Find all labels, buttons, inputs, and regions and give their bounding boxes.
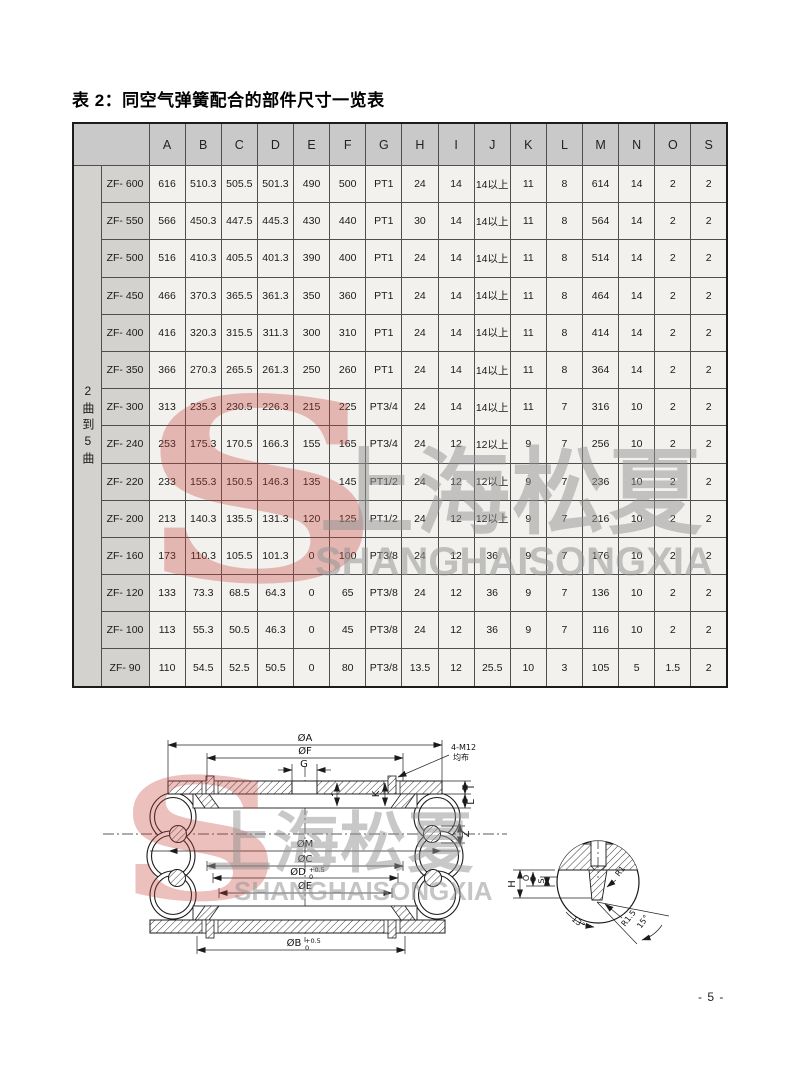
value-cell: 350 [294,277,330,314]
value-cell: 10 [619,389,655,426]
table-row: ZF- 160173110.3105.5101.30100PT3/8241236… [73,537,727,574]
value-cell: 11 [510,166,546,203]
value-cell: 11 [510,240,546,277]
value-cell: 0 [294,612,330,649]
table-row: ZF- 240253175.3170.5166.3155165PT3/42412… [73,426,727,463]
value-cell: 50.5 [221,612,257,649]
model-cell: ZF- 120 [101,575,149,612]
value-cell: 8 [546,314,582,351]
value-cell: 2 [691,389,727,426]
value-cell: 14 [619,166,655,203]
value-cell: 14以上 [474,277,510,314]
value-cell: 447.5 [221,203,257,240]
value-cell: 14 [438,203,474,240]
page-title: 表 2：同空气弹簧配合的部件尺寸一览表 [72,86,385,111]
bolt-note-line1: 4-M12 [451,743,476,752]
value-cell: PT1 [366,240,402,277]
value-cell: 12 [438,500,474,537]
model-cell: ZF- 240 [101,426,149,463]
value-cell: 430 [294,203,330,240]
value-cell: 2 [655,277,691,314]
value-cell: 36 [474,612,510,649]
value-cell: 9 [510,426,546,463]
value-cell: 505.5 [221,166,257,203]
value-cell: 260 [330,351,366,388]
value-cell: 2 [655,203,691,240]
value-cell: 65 [330,575,366,612]
table-row: ZF- 550566450.3447.5445.3430440PT1301414… [73,203,727,240]
value-cell: 12 [438,649,474,687]
value-cell: 133 [149,575,185,612]
value-cell: 14 [619,314,655,351]
value-cell: 155 [294,426,330,463]
tapped-hole [591,838,606,866]
value-cell: 2 [691,649,727,687]
value-cell: 36 [474,537,510,574]
value-cell: 2 [655,537,691,574]
value-cell: 24 [402,575,438,612]
value-cell: 73.3 [185,575,221,612]
value-cell: 516 [149,240,185,277]
value-cell: 366 [149,351,185,388]
value-cell: 500 [330,166,366,203]
value-cell: 2 [691,351,727,388]
air-spring-cross-section-drawing: ØA ØF G 4-M12 均布 J K I L Z ØM [85,728,675,994]
value-cell: 105 [583,649,619,687]
value-cell: 165 [330,426,366,463]
value-cell: 24 [402,612,438,649]
value-cell: 7 [546,500,582,537]
value-cell: 2 [655,314,691,351]
value-cell: 113 [149,612,185,649]
value-cell: 10 [619,500,655,537]
value-cell: 9 [510,537,546,574]
value-cell: 14以上 [474,166,510,203]
dim-label-a: ØA [298,732,313,744]
value-cell: 11 [510,314,546,351]
model-cell: ZF- 300 [101,389,149,426]
value-cell: 225 [330,389,366,426]
value-cell: PT1 [366,166,402,203]
value-cell: 12以上 [474,426,510,463]
value-cell: 2 [655,240,691,277]
value-cell: 2 [655,500,691,537]
value-cell: 14以上 [474,389,510,426]
page-number: - 5 - [698,990,724,1004]
column-header: K [510,123,546,166]
value-cell: 261.3 [257,351,293,388]
value-cell: PT1 [366,277,402,314]
model-cell: ZF- 550 [101,203,149,240]
value-cell: 614 [583,166,619,203]
dim-label-z: Z [461,830,472,837]
value-cell: 7 [546,537,582,574]
value-cell: 3 [546,649,582,687]
value-cell: 2 [691,463,727,500]
value-cell: 146.3 [257,463,293,500]
column-header: I [438,123,474,166]
column-header: N [619,123,655,166]
detail-label-15deg: 15° [635,913,651,930]
dim-b-tol-lower: 0 [305,944,309,952]
column-header: M [583,123,619,166]
value-cell: 14 [619,277,655,314]
value-cell: 24 [402,166,438,203]
value-cell: 405.5 [221,240,257,277]
value-cell: 14 [438,389,474,426]
value-cell: 316 [583,389,619,426]
value-cell: PT3/4 [366,389,402,426]
value-cell: 24 [402,389,438,426]
value-cell: 233 [149,463,185,500]
value-cell: 100 [330,537,366,574]
value-cell: 2 [691,575,727,612]
value-cell: 8 [546,351,582,388]
model-cell: ZF- 350 [101,351,149,388]
table-row: ZF- 10011355.350.546.3045PT3/82412369711… [73,612,727,649]
value-cell: 5 [619,649,655,687]
model-cell: ZF- 400 [101,314,149,351]
value-cell: PT1/2 [366,463,402,500]
top-plate [168,776,442,808]
detail-label-o: O [522,875,531,881]
value-cell: 11 [510,351,546,388]
bellows-left [147,793,196,919]
value-cell: PT1 [366,351,402,388]
value-cell: 116 [583,612,619,649]
value-cell: 52.5 [221,649,257,687]
value-cell: 10 [510,649,546,687]
value-cell: 12以上 [474,463,510,500]
value-cell: 80 [330,649,366,687]
document-page: 表 2：同空气弹簧配合的部件尺寸一览表 ABCDEFGHIJKLMNOS 2曲到… [0,0,800,1085]
value-cell: 14以上 [474,240,510,277]
value-cell: 510.3 [185,166,221,203]
table-row: ZF- 450466370.3365.5361.3350360PT1241414… [73,277,727,314]
column-header: C [221,123,257,166]
value-cell: 8 [546,203,582,240]
value-cell: 155.3 [185,463,221,500]
dim-label-k: K [371,790,382,797]
table-corner [73,123,149,166]
value-cell: 11 [510,389,546,426]
dim-label-m: ØM [297,838,314,850]
value-cell: 131.3 [257,500,293,537]
value-cell: 360 [330,277,366,314]
value-cell: 36 [474,575,510,612]
dim-label-b: ØB [287,937,302,949]
value-cell: 175.3 [185,426,221,463]
dimension-table: ABCDEFGHIJKLMNOS 2曲到5曲ZF- 600616510.3505… [72,122,728,688]
table-body: 2曲到5曲ZF- 600616510.3505.5501.3490500PT12… [73,166,727,687]
air-port [292,781,317,794]
value-cell: 12 [438,537,474,574]
value-cell: 490 [294,166,330,203]
value-cell: 256 [583,426,619,463]
value-cell: 24 [402,277,438,314]
value-cell: PT3/8 [366,612,402,649]
value-cell: 0 [294,537,330,574]
dim-label-d: ØD [290,866,306,878]
value-cell: 365.5 [221,277,257,314]
value-cell: 9 [510,612,546,649]
value-cell: 9 [510,575,546,612]
value-cell: 45 [330,612,366,649]
value-cell: 320.3 [185,314,221,351]
value-cell: 230.5 [221,389,257,426]
value-cell: 2 [655,463,691,500]
value-cell: 12 [438,612,474,649]
value-cell: 14 [438,277,474,314]
value-cell: 101.3 [257,537,293,574]
value-cell: 7 [546,575,582,612]
value-cell: 12 [438,463,474,500]
column-header: S [691,123,727,166]
detail-label-h: H [507,880,518,888]
model-cell: ZF- 100 [101,612,149,649]
value-cell: 13.5 [402,649,438,687]
value-cell: 14 [619,240,655,277]
value-cell: PT1 [366,203,402,240]
value-cell: PT1/2 [366,500,402,537]
value-cell: 566 [149,203,185,240]
value-cell: 11 [510,277,546,314]
value-cell: 361.3 [257,277,293,314]
value-cell: 68.5 [221,575,257,612]
value-cell: 14 [438,314,474,351]
column-header: E [294,123,330,166]
value-cell: PT3/8 [366,649,402,687]
value-cell: 236 [583,463,619,500]
detail-view: H O S R1 R1.5 13° 15° [507,838,669,944]
value-cell: 265.5 [221,351,257,388]
value-cell: 416 [149,314,185,351]
value-cell: 14 [619,203,655,240]
value-cell: 50.5 [257,649,293,687]
value-cell: 166.3 [257,426,293,463]
value-cell: 8 [546,166,582,203]
value-cell: 253 [149,426,185,463]
header-row: ABCDEFGHIJKLMNOS [73,123,727,166]
value-cell: 9 [510,463,546,500]
value-cell: 2 [655,166,691,203]
value-cell: 0 [294,649,330,687]
value-cell: 401.3 [257,240,293,277]
model-cell: ZF- 160 [101,537,149,574]
bellows-right [414,793,463,919]
dim-label-l: L [466,799,477,805]
table-row: ZF- 12013373.368.564.3065PT3/82412369713… [73,575,727,612]
value-cell: PT3/4 [366,426,402,463]
value-cell: 501.3 [257,166,293,203]
column-header: B [185,123,221,166]
column-header: A [149,123,185,166]
value-cell: 370.3 [185,277,221,314]
value-cell: 25.5 [474,649,510,687]
model-cell: ZF- 450 [101,277,149,314]
value-cell: 7 [546,389,582,426]
value-cell: 135.5 [221,500,257,537]
value-cell: 445.3 [257,203,293,240]
value-cell: 8 [546,277,582,314]
value-cell: 2 [691,240,727,277]
value-cell: 2 [691,314,727,351]
value-cell: 235.3 [185,389,221,426]
value-cell: PT3/8 [366,575,402,612]
value-cell: 54.5 [185,649,221,687]
value-cell: 1.5 [655,649,691,687]
value-cell: 14以上 [474,314,510,351]
value-cell: 24 [402,351,438,388]
value-cell: PT1 [366,314,402,351]
value-cell: 105.5 [221,537,257,574]
value-cell: 0 [294,575,330,612]
value-cell: 250 [294,351,330,388]
dim-label-i: I [466,786,477,789]
value-cell: 110.3 [185,537,221,574]
value-cell: 135 [294,463,330,500]
table-row: ZF- 220233155.3150.5146.3135145PT1/22412… [73,463,727,500]
value-cell: 46.3 [257,612,293,649]
value-cell: 24 [402,314,438,351]
value-cell: 10 [619,612,655,649]
value-cell: 2 [691,277,727,314]
value-cell: 2 [691,426,727,463]
value-cell: 514 [583,240,619,277]
value-cell: 7 [546,612,582,649]
bolt-note-line2: 均布 [453,752,469,762]
value-cell: 14以上 [474,203,510,240]
value-cell: 2 [655,389,691,426]
value-cell: 136 [583,575,619,612]
model-cell: ZF- 600 [101,166,149,203]
value-cell: 2 [655,426,691,463]
value-cell: 24 [402,426,438,463]
value-cell: 170.5 [221,426,257,463]
value-cell: 400 [330,240,366,277]
table-row: ZF- 300313235.3230.5226.3215225PT3/42414… [73,389,727,426]
value-cell: 466 [149,277,185,314]
value-cell: 150.5 [221,463,257,500]
value-cell: 213 [149,500,185,537]
value-cell: 7 [546,463,582,500]
value-cell: 216 [583,500,619,537]
value-cell: 14以上 [474,351,510,388]
value-cell: 364 [583,351,619,388]
model-cell: ZF- 500 [101,240,149,277]
value-cell: 270.3 [185,351,221,388]
value-cell: 9 [510,500,546,537]
value-cell: 2 [691,203,727,240]
column-header: O [655,123,691,166]
value-cell: 2 [655,575,691,612]
value-cell: 14 [438,240,474,277]
dim-label-g: G [300,759,308,770]
table-row: ZF- 200213140.3135.5131.3120125PT1/22412… [73,500,727,537]
value-cell: 24 [402,463,438,500]
value-cell: 110 [149,649,185,687]
value-cell: 311.3 [257,314,293,351]
value-cell: 24 [402,537,438,574]
value-cell: 55.3 [185,612,221,649]
value-cell: 215 [294,389,330,426]
value-cell: 173 [149,537,185,574]
value-cell: 8 [546,240,582,277]
column-header: G [366,123,402,166]
table-row: ZF- 500516410.3405.5401.3390400PT1241414… [73,240,727,277]
detail-label-s: S [537,878,546,883]
row-group-label: 2曲到5曲 [73,166,101,687]
value-cell: 300 [294,314,330,351]
value-cell: 313 [149,389,185,426]
value-cell: 24 [402,240,438,277]
value-cell: 176 [583,537,619,574]
table-row: ZF- 350366270.3265.5261.3250260PT1241414… [73,351,727,388]
value-cell: 14 [438,351,474,388]
value-cell: 440 [330,203,366,240]
value-cell: 10 [619,426,655,463]
value-cell: 140.3 [185,500,221,537]
value-cell: 2 [655,612,691,649]
dim-label-c: ØC [298,853,313,865]
value-cell: 616 [149,166,185,203]
model-cell: ZF- 90 [101,649,149,687]
value-cell: 2 [655,351,691,388]
dim-label-e: ØE [298,880,312,892]
value-cell: 2 [691,500,727,537]
value-cell: PT3/8 [366,537,402,574]
value-cell: 10 [619,463,655,500]
value-cell: 464 [583,277,619,314]
table-row: ZF- 9011054.552.550.5080PT3/813.51225.51… [73,649,727,687]
column-header: D [257,123,293,166]
value-cell: 2 [691,537,727,574]
column-header: H [402,123,438,166]
value-cell: 10 [619,575,655,612]
value-cell: 14 [438,166,474,203]
value-cell: 450.3 [185,203,221,240]
bottom-plate [150,906,445,938]
column-header: J [474,123,510,166]
value-cell: 12以上 [474,500,510,537]
table-row: 2曲到5曲ZF- 600616510.3505.5501.3490500PT12… [73,166,727,203]
value-cell: 310 [330,314,366,351]
value-cell: 12 [438,426,474,463]
column-header: L [546,123,582,166]
value-cell: 12 [438,575,474,612]
value-cell: 10 [619,537,655,574]
value-cell: 390 [294,240,330,277]
value-cell: 145 [330,463,366,500]
value-cell: 2 [691,166,727,203]
value-cell: 14 [619,351,655,388]
column-header: F [330,123,366,166]
model-cell: ZF- 220 [101,463,149,500]
value-cell: 414 [583,314,619,351]
value-cell: 315.5 [221,314,257,351]
table-row: ZF- 400416320.3315.5311.3300310PT1241414… [73,314,727,351]
dim-d-tol-lower: 0 [309,873,313,881]
value-cell: 564 [583,203,619,240]
value-cell: 410.3 [185,240,221,277]
value-cell: 2 [691,612,727,649]
value-cell: 125 [330,500,366,537]
value-cell: 30 [402,203,438,240]
value-cell: 120 [294,500,330,537]
value-cell: 7 [546,426,582,463]
value-cell: 11 [510,203,546,240]
value-cell: 24 [402,500,438,537]
